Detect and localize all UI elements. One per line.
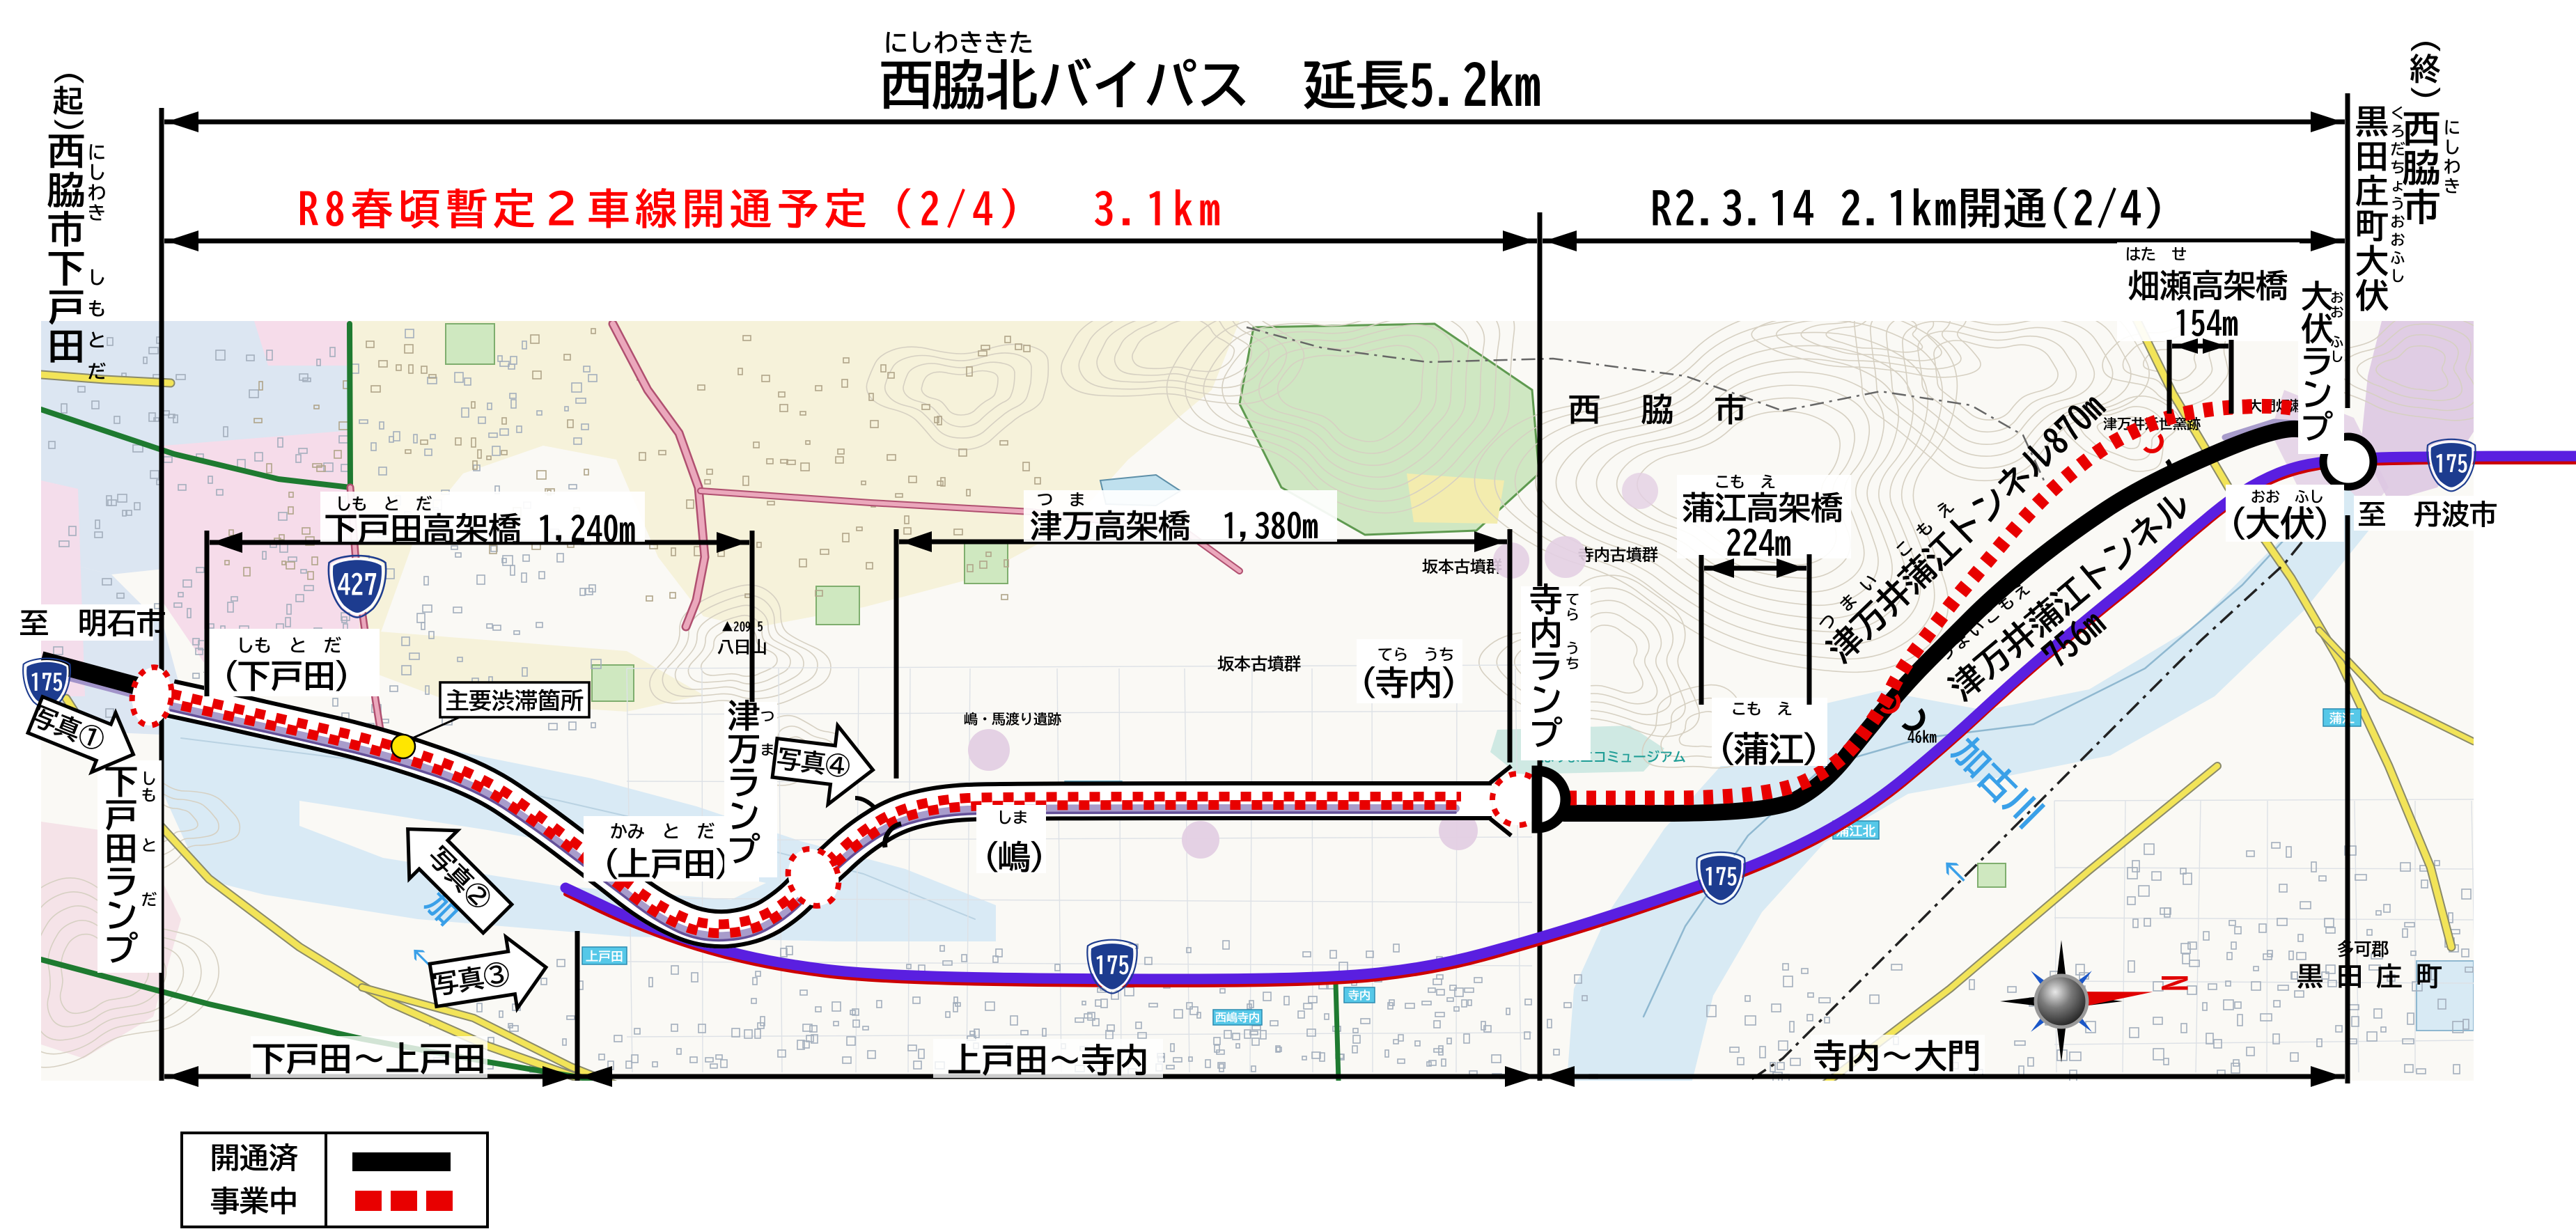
svg-text:下: 下 [104,765,138,798]
svg-text:お: お [2391,214,2405,229]
svg-text:（: （ [1344,666,1377,699]
svg-text:ラ: ラ [104,865,138,898]
svg-text:う: う [2391,196,2405,211]
svg-text:プ: プ [1530,717,1563,749]
svg-text:ら: ら [1566,608,1579,622]
svg-text:終: 終 [2410,54,2440,84]
svg-text:下戸田～上戸田: 下戸田～上戸田 [252,1042,486,1075]
svg-text:）: ） [2313,506,2348,541]
svg-text:事業中: 事業中 [210,1186,298,1216]
svg-text:上戸田: 上戸田 [586,950,623,963]
svg-text:坂本古墳群: 坂本古墳群 [1422,558,1502,574]
svg-text:ま: ま [760,743,774,757]
svg-text:プ: プ [2301,411,2333,443]
svg-text:に: に [2444,119,2460,136]
svg-text:ろ: ろ [2391,124,2405,139]
svg-text:と: と [88,331,106,350]
svg-text:き: き [2444,178,2460,194]
svg-text:津: 津 [728,699,760,732]
svg-text:き: き [88,204,106,222]
svg-text:蒲江: 蒲江 [1734,732,1804,767]
svg-text:ち: ち [2391,160,2405,175]
svg-text:上戸田～寺内: 上戸田～寺内 [948,1043,1148,1077]
svg-text:西: 西 [2403,110,2440,148]
svg-text:上戸田: 上戸田 [618,847,716,880]
svg-text:嶋: 嶋 [998,840,1031,873]
svg-text:175: 175 [1095,954,1130,977]
svg-text:伏: 伏 [2301,313,2333,345]
svg-text:だ: だ [141,891,157,907]
svg-text:ン: ン [104,898,138,932]
svg-text:田: 田 [2355,139,2389,173]
svg-text:N: N [2158,975,2190,991]
svg-text:46km: 46km [1907,730,1937,744]
svg-text:寺内古墳群: 寺内古墳群 [1578,546,1658,563]
svg-text:も: も [141,788,157,803]
svg-text:町: 町 [2355,209,2389,242]
svg-text:ン: ン [728,799,760,832]
svg-text:蒲江高架橋: 蒲江高架橋 [1683,492,1843,524]
svg-text:（: （ [1701,732,1736,767]
svg-text:脇: 脇 [2403,149,2440,187]
svg-text:175: 175 [30,671,63,693]
svg-text:蒲江: 蒲江 [2329,712,2355,725]
svg-text:し: し [88,269,106,287]
svg-text:大伏: 大伏 [2245,506,2315,541]
svg-text:と: と [141,838,157,853]
svg-text:脇: 脇 [47,171,85,209]
svg-text:西: 西 [47,132,85,170]
svg-text:起: 起 [53,86,84,116]
svg-text:（: （ [54,55,84,86]
svg-text:おお ふし: おお ふし [2251,490,2324,504]
svg-text:く: く [2391,106,2405,120]
svg-text:寺内: 寺内 [1348,989,1371,1001]
svg-text:224m: 224m [1726,526,1791,559]
svg-text:大門畑瀬: 大門畑瀬 [2248,398,2304,413]
svg-text:坂本古墳群: 坂本古墳群 [1217,655,1301,672]
svg-text:わ: わ [88,184,106,202]
svg-text:西 脇 市: 西 脇 市 [1568,393,1759,425]
svg-text:（: （ [967,840,1000,873]
svg-text:至 明石市: 至 明石市 [19,609,166,638]
svg-text:こも え: こも え [1731,701,1793,717]
svg-text:はた せ: はた せ [2125,246,2187,262]
svg-text:てら うち: てら うち [1377,647,1454,662]
svg-text:万: 万 [728,733,760,765]
svg-text:市: 市 [2403,188,2440,226]
svg-text:つ: つ [760,710,774,723]
svg-text:ち: ち [1566,656,1579,671]
svg-text:主要渋滞箇所: 主要渋滞箇所 [446,689,584,712]
svg-text:ラ: ラ [2301,345,2333,377]
svg-text:しま: しま [997,810,1028,825]
svg-text:田: 田 [104,831,138,865]
svg-text:黒: 黒 [2355,104,2389,138]
svg-text:154m: 154m [2174,307,2238,339]
svg-text:西嶋寺内: 西嶋寺内 [1215,1012,1260,1023]
svg-text:て: て [1566,593,1579,606]
svg-text:）: ） [1440,666,1474,699]
svg-text:内: 内 [1530,616,1563,649]
svg-text:しも と だ: しも と だ [237,636,342,655]
svg-text:黒 田 庄 町: 黒 田 庄 町 [2297,963,2442,989]
svg-text:下戸田: 下戸田 [237,659,336,692]
svg-text:しも と だ: しも と だ [336,495,432,512]
svg-text:プ: プ [728,833,760,866]
svg-text:▲209.5: ▲209.5 [721,621,763,633]
svg-text:（: （ [2212,506,2247,541]
svg-text:ょ: ょ [2391,178,2405,193]
svg-text:175: 175 [1704,865,1738,887]
svg-text:寺: 寺 [1530,583,1563,616]
svg-text:し: し [88,164,106,182]
svg-text:至 丹波市: 至 丹波市 [2358,500,2497,528]
svg-text:プ: プ [104,932,138,965]
svg-text:し: し [141,771,157,786]
svg-text:嶋・馬渡り遺跡: 嶋・馬渡り遺跡 [964,712,1061,726]
svg-text:175: 175 [2435,452,2468,474]
svg-text:ン: ン [2301,378,2333,410]
svg-text:ラ: ラ [1530,650,1563,682]
svg-text:（: （ [207,659,240,692]
svg-text:お: お [2331,291,2344,304]
svg-text:かみ と だ: かみ と だ [610,822,715,840]
svg-text:戸: 戸 [104,798,138,831]
svg-text:う: う [1566,641,1579,655]
svg-text:）: ） [1802,732,1836,767]
svg-text:寺内～大門: 寺内～大門 [1813,1039,1981,1072]
svg-text:開通済: 開通済 [210,1143,298,1173]
svg-text:）: ） [1029,840,1061,873]
svg-text:八日山: 八日山 [717,639,767,655]
svg-text:し: し [2331,350,2344,363]
svg-text:に: に [88,143,106,162]
svg-text:寺内: 寺内 [1375,666,1442,699]
svg-text:ン: ン [1530,683,1563,716]
svg-text:お: お [2331,306,2344,319]
svg-text:にしわききた: にしわききた [884,31,1034,55]
svg-text:西脇北バイパス 延長5.2km: 西脇北バイパス 延長5.2km [880,58,1541,111]
svg-text:427: 427 [337,570,377,597]
svg-text:下戸田高架橋 1,240m: 下戸田高架橋 1,240m [325,512,636,545]
svg-text:庄: 庄 [2355,174,2389,208]
svg-text:津万高架橋 1,380m: 津万高架橋 1,380m [1030,510,1318,542]
svg-text:つ ま: つ ま [1037,492,1085,508]
svg-text:（: （ [2410,23,2441,54]
svg-text:ふ: ふ [2391,251,2405,265]
svg-text:だ: だ [2391,142,2405,157]
svg-text:も: も [88,300,106,318]
svg-text:こも え: こも え [1715,474,1776,490]
svg-text:多可郡: 多可郡 [2337,940,2389,958]
svg-text:伏: 伏 [2355,279,2389,312]
svg-text:R2.3.14 2.1km開通(2/4): R2.3.14 2.1km開通(2/4) [1650,187,2167,230]
svg-text:ふ: ふ [2331,336,2344,349]
svg-text:下: 下 [47,249,85,287]
svg-text:し: し [2444,139,2460,155]
svg-text:し: し [2391,269,2405,283]
svg-text:畑瀬高架橋: 畑瀬高架橋 [2128,269,2288,302]
svg-text:大: 大 [2301,280,2333,312]
svg-text:ラ: ラ [728,766,760,799]
svg-text:R8春頃暫定２車線開通予定（2/4） 3.1km: R8春頃暫定２車線開通予定（2/4） 3.1km [298,187,1226,230]
svg-text:（: （ [587,847,620,880]
svg-text:わ: わ [2444,158,2460,175]
svg-text:戸: 戸 [47,288,85,326]
svg-text:）: ） [334,659,366,692]
svg-text:市: 市 [47,210,85,248]
svg-text:田: 田 [47,327,85,365]
svg-text:だ: だ [88,362,106,381]
svg-text:大: 大 [2355,244,2389,277]
svg-text:お: お [2391,233,2405,247]
